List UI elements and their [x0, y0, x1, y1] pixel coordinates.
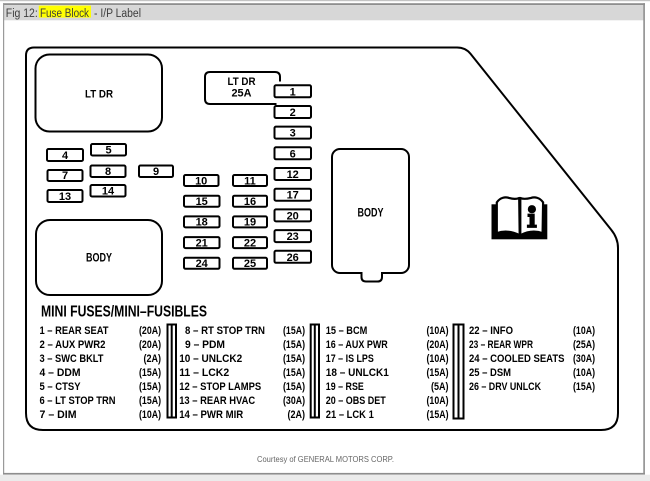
svg-text:Courtesy of GENERAL MOTORS COR: Courtesy of GENERAL MOTORS CORP.: [257, 454, 394, 464]
svg-text:4 – DDM: 4 – DDM: [40, 367, 81, 379]
svg-text:(15A): (15A): [139, 381, 161, 393]
svg-text:2: 2: [290, 107, 296, 119]
svg-text:(15A): (15A): [573, 381, 595, 393]
svg-text:8 – RT STOP TRN: 8 – RT STOP TRN: [185, 325, 265, 337]
svg-text:(15A): (15A): [283, 353, 305, 365]
svg-text:(10A): (10A): [427, 353, 449, 365]
svg-text:20: 20: [287, 210, 299, 222]
svg-text:11 – LCK2: 11 – LCK2: [179, 367, 229, 379]
svg-text:(2A): (2A): [144, 353, 162, 365]
svg-text:(15A): (15A): [283, 339, 305, 351]
svg-text:(10A): (10A): [573, 325, 595, 337]
svg-text:(15A): (15A): [139, 395, 161, 407]
svg-text:10: 10: [195, 175, 207, 187]
svg-text:(10A): (10A): [139, 409, 161, 421]
svg-text:Fig 12:: Fig 12:: [6, 8, 38, 20]
svg-text:1 – REAR SEAT: 1 – REAR SEAT: [40, 325, 109, 337]
svg-text:5 – CTSY: 5 – CTSY: [40, 381, 82, 393]
svg-text:1: 1: [290, 86, 296, 98]
svg-text:(5A): (5A): [431, 381, 449, 393]
svg-text:13 – REAR HVAC: 13 – REAR HVAC: [179, 395, 255, 407]
svg-text:15: 15: [196, 196, 208, 208]
svg-text:(30A): (30A): [283, 395, 305, 407]
svg-text:MINI FUSES/MINI–FUSIBLES: MINI FUSES/MINI–FUSIBLES: [41, 303, 207, 320]
svg-text:3 – SWC BKLT: 3 – SWC BKLT: [40, 353, 104, 365]
svg-text:(15A): (15A): [283, 367, 305, 379]
svg-text:16 – AUX PWR: 16 – AUX PWR: [326, 339, 388, 351]
svg-text:21: 21: [196, 237, 208, 249]
svg-text:- I/P Label: - I/P Label: [94, 8, 141, 20]
svg-text:12 – STOP LAMPS: 12 – STOP LAMPS: [179, 381, 261, 393]
svg-text:6: 6: [290, 148, 296, 160]
svg-text:25A: 25A: [232, 88, 252, 100]
svg-text:24: 24: [196, 258, 209, 270]
svg-text:14: 14: [102, 186, 115, 198]
svg-text:(20A): (20A): [427, 339, 449, 351]
svg-text:22: 22: [244, 237, 256, 249]
svg-text:9: 9: [153, 166, 159, 178]
svg-text:(15A): (15A): [139, 367, 161, 379]
svg-text:LT DR: LT DR: [228, 76, 256, 88]
svg-text:(20A): (20A): [139, 325, 161, 337]
svg-text:26 – DRV UNLCK: 26 – DRV UNLCK: [469, 381, 541, 393]
svg-text:24 – COOLED SEATS: 24 – COOLED SEATS: [469, 353, 565, 365]
svg-text:10 – UNLCK2: 10 – UNLCK2: [179, 353, 242, 365]
svg-text:16: 16: [244, 196, 256, 208]
svg-text:(10A): (10A): [573, 367, 595, 379]
svg-text:14 – PWR MIR: 14 – PWR MIR: [179, 409, 243, 421]
svg-text:13: 13: [59, 191, 71, 203]
svg-text:15 – BCM: 15 – BCM: [326, 325, 368, 337]
svg-text:25: 25: [244, 258, 256, 270]
svg-text:19: 19: [244, 217, 256, 229]
svg-text:(2A): (2A): [288, 409, 306, 421]
svg-text:17: 17: [287, 190, 299, 202]
svg-text:19 – RSE: 19 – RSE: [326, 381, 364, 393]
svg-text:7: 7: [62, 170, 68, 182]
svg-text:25 – DSM: 25 – DSM: [469, 367, 511, 379]
svg-text:(10A): (10A): [427, 325, 449, 337]
svg-text:22 – INFO: 22 – INFO: [469, 325, 513, 337]
svg-text:(15A): (15A): [283, 381, 305, 393]
svg-text:5: 5: [105, 145, 111, 157]
svg-text:(10A): (10A): [427, 395, 449, 407]
svg-text:21 – LCK 1: 21 – LCK 1: [326, 409, 374, 421]
svg-text:18: 18: [196, 217, 208, 229]
svg-text:(15A): (15A): [427, 409, 449, 421]
svg-text:(20A): (20A): [139, 339, 161, 351]
svg-text:11: 11: [244, 175, 256, 187]
svg-text:(15A): (15A): [283, 325, 305, 337]
svg-text:12: 12: [287, 169, 299, 181]
svg-text:2 – AUX PWR2: 2 – AUX PWR2: [40, 339, 106, 351]
svg-text:BODY: BODY: [86, 253, 112, 265]
svg-text:26: 26: [287, 252, 299, 264]
svg-text:6 – LT STOP TRN: 6 – LT STOP TRN: [40, 395, 116, 407]
svg-text:20 – OBS DET: 20 – OBS DET: [326, 395, 386, 407]
svg-text:(15A): (15A): [427, 367, 449, 379]
svg-text:17 – IS LPS: 17 – IS LPS: [326, 353, 374, 365]
svg-text:4: 4: [62, 150, 69, 162]
svg-text:(25A): (25A): [573, 339, 595, 351]
svg-text:18 – UNLCK1: 18 – UNLCK1: [326, 367, 389, 379]
svg-text:Fuse Block: Fuse Block: [40, 8, 89, 20]
svg-text:LT DR: LT DR: [85, 89, 113, 101]
svg-text:(30A): (30A): [573, 353, 595, 365]
svg-text:8: 8: [105, 166, 111, 178]
svg-text:3: 3: [290, 128, 296, 140]
svg-text:23 – REAR WPR: 23 – REAR WPR: [469, 339, 533, 351]
svg-text:9 – PDM: 9 – PDM: [185, 339, 225, 351]
svg-text:BODY: BODY: [358, 206, 384, 220]
svg-text:23: 23: [287, 231, 299, 243]
svg-text:7 – DIM: 7 – DIM: [40, 409, 77, 421]
